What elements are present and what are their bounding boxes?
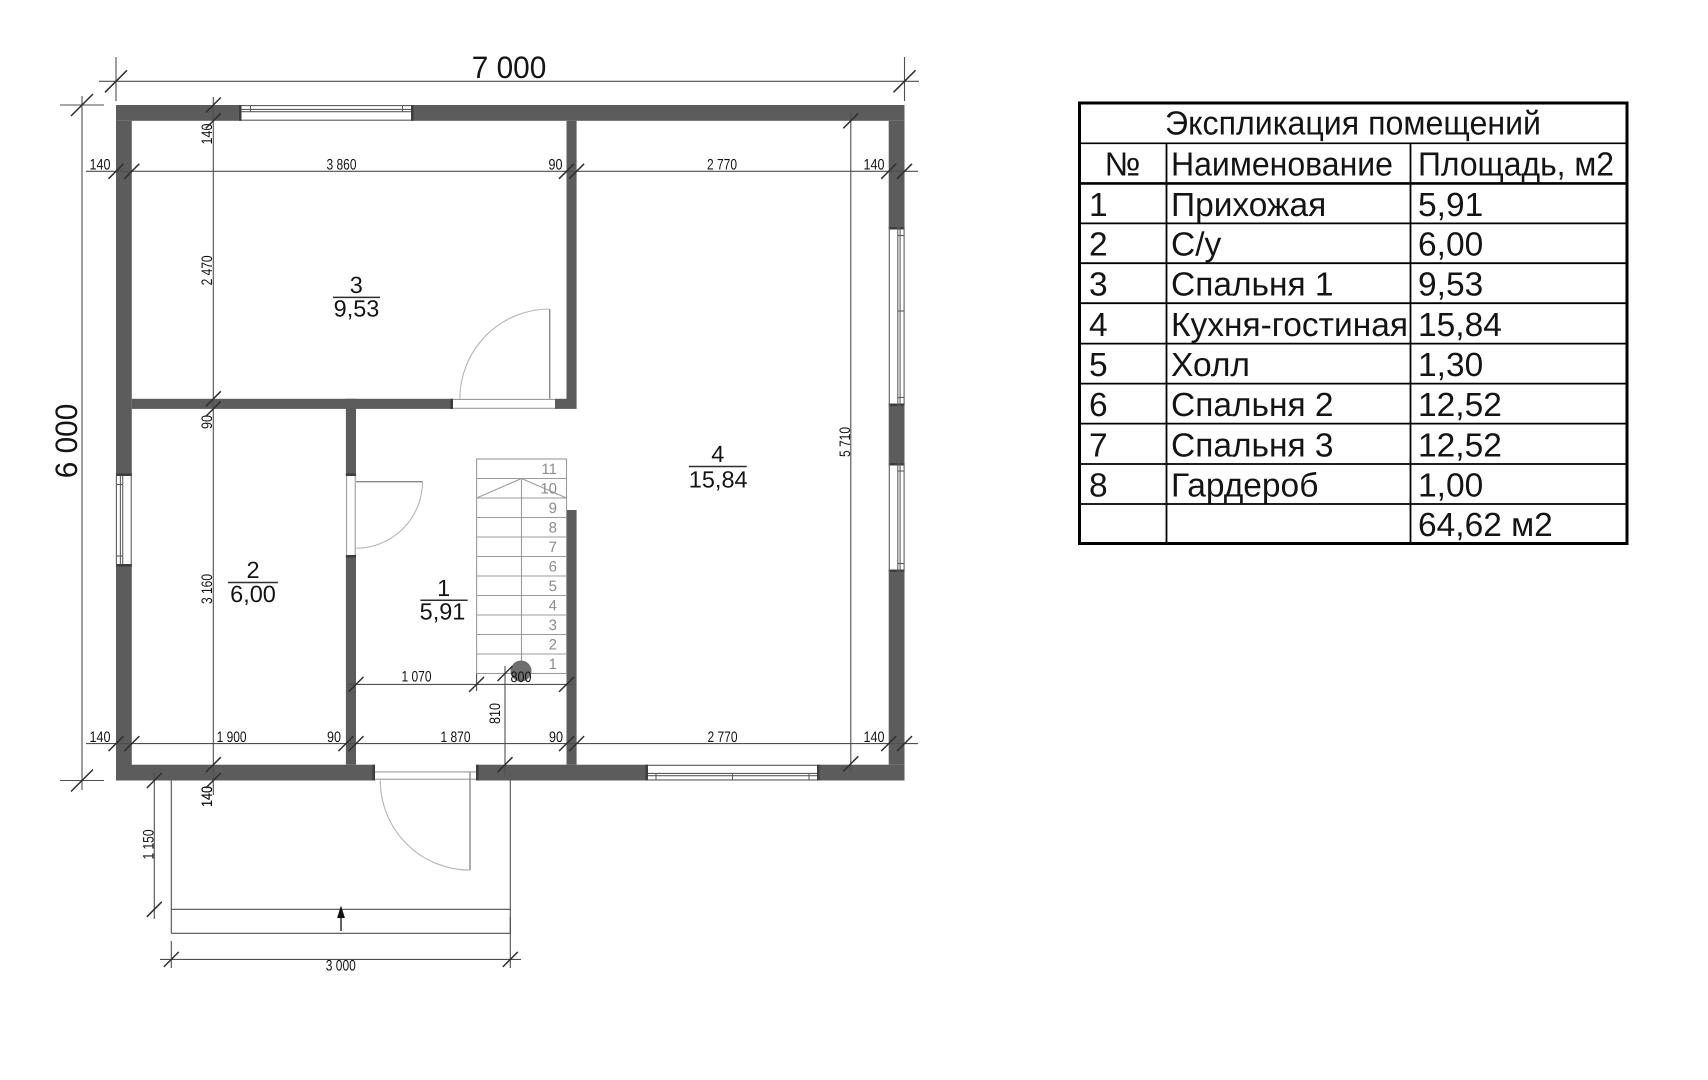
svg-text:2 470: 2 470 [199,255,216,285]
svg-text:1,00: 1,00 [1418,467,1483,504]
svg-text:2: 2 [1089,227,1108,264]
svg-text:1 150: 1 150 [140,830,157,860]
svg-text:140: 140 [199,124,216,145]
svg-text:3 160: 3 160 [199,574,216,604]
svg-text:140: 140 [90,729,111,746]
svg-text:3: 3 [549,617,557,634]
svg-text:Кухня-гостиная: Кухня-гостиная [1171,307,1408,344]
svg-text:Гардероб: Гардероб [1171,467,1318,504]
svg-text:90: 90 [549,729,563,746]
svg-text:5: 5 [549,578,557,595]
svg-text:15,84: 15,84 [689,466,748,492]
svg-text:2: 2 [549,637,557,654]
svg-text:Спальня 3: Спальня 3 [1171,427,1334,464]
svg-text:1,30: 1,30 [1418,347,1483,384]
svg-text:140: 140 [90,157,111,174]
svg-text:Прихожая: Прихожая [1171,187,1326,224]
svg-text:90: 90 [199,415,216,429]
svg-text:6: 6 [1089,387,1108,424]
svg-text:7 000: 7 000 [472,50,547,85]
svg-text:7: 7 [1089,427,1108,464]
svg-text:4: 4 [549,598,557,615]
svg-text:6 000: 6 000 [49,404,84,479]
svg-text:810: 810 [487,703,504,724]
svg-text:5: 5 [1089,347,1108,384]
svg-text:3: 3 [1089,267,1108,304]
svg-text:Экспликация помещений: Экспликация помещений [1165,106,1541,143]
svg-text:3 860: 3 860 [327,157,357,174]
svg-text:140: 140 [864,729,885,746]
svg-text:1: 1 [1089,187,1108,224]
svg-text:4: 4 [1089,307,1108,344]
svg-text:11: 11 [541,461,557,478]
svg-text:1 900: 1 900 [217,729,247,746]
svg-text:8: 8 [549,520,557,537]
svg-text:Спальня 1: Спальня 1 [1171,267,1334,304]
svg-text:140: 140 [199,786,216,807]
svg-text:3: 3 [350,272,363,298]
svg-text:2 770: 2 770 [708,729,738,746]
svg-text:6,00: 6,00 [1418,227,1483,264]
svg-text:9: 9 [549,500,557,517]
svg-text:1 070: 1 070 [402,669,432,686]
svg-text:6,00: 6,00 [230,581,276,607]
svg-text:9,53: 9,53 [1418,267,1483,304]
svg-text:90: 90 [327,729,341,746]
svg-text:12,52: 12,52 [1418,387,1502,424]
svg-text:64,62 м2: 64,62 м2 [1418,507,1553,544]
svg-text:1 870: 1 870 [441,729,471,746]
svg-text:1: 1 [437,575,450,601]
svg-text:140: 140 [864,157,885,174]
svg-text:1: 1 [549,656,557,673]
svg-text:4: 4 [711,441,724,467]
svg-text:Наименование: Наименование [1171,146,1393,183]
svg-text:8: 8 [1089,467,1108,504]
svg-text:7: 7 [549,539,557,556]
svg-text:С/у: С/у [1171,227,1222,264]
svg-text:2 770: 2 770 [707,157,737,174]
svg-text:5,91: 5,91 [420,599,466,625]
svg-text:6: 6 [549,559,557,576]
svg-text:10: 10 [540,481,557,498]
svg-text:2: 2 [246,557,259,583]
svg-text:№: № [1105,146,1141,183]
svg-text:9,53: 9,53 [334,296,380,322]
svg-text:Холл: Холл [1171,347,1250,384]
svg-text:Площадь, м2: Площадь, м2 [1418,146,1614,183]
svg-text:15,84: 15,84 [1418,307,1502,344]
svg-text:Спальня 2: Спальня 2 [1171,387,1334,424]
svg-text:5,91: 5,91 [1418,187,1483,224]
svg-text:800: 800 [511,669,532,686]
svg-text:3 000: 3 000 [326,958,356,975]
svg-text:90: 90 [549,157,563,174]
svg-text:12,52: 12,52 [1418,427,1502,464]
svg-text:5 710: 5 710 [837,427,854,457]
